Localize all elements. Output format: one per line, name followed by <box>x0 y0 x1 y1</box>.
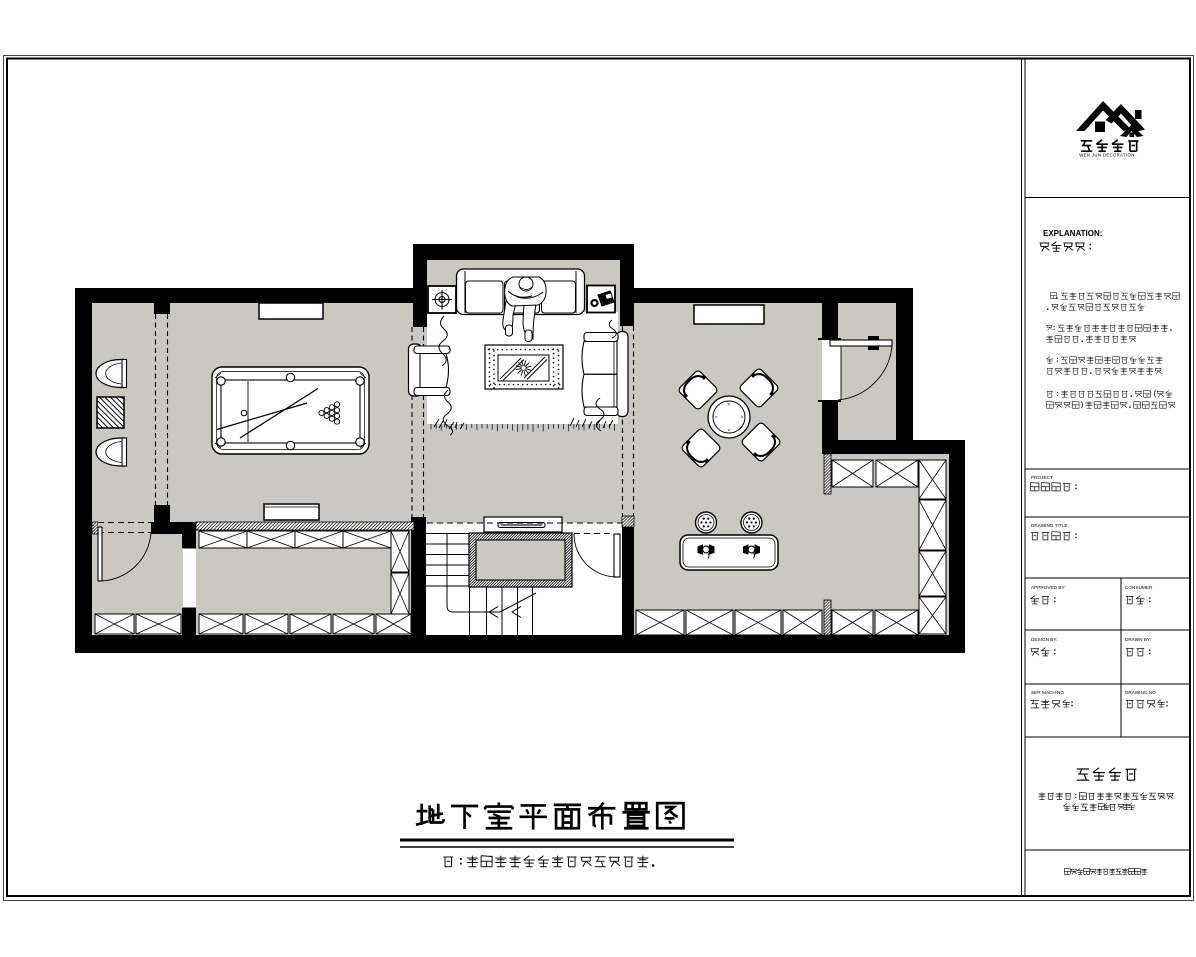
svg-text:EXPLANATION:: EXPLANATION: <box>1043 229 1102 238</box>
svg-text:DRAWN BY:: DRAWN BY: <box>1125 637 1151 642</box>
svg-text:DRAWING TITLE:: DRAWING TITLE: <box>1031 523 1069 528</box>
svg-text:WEN JUN DECORATION: WEN JUN DECORATION <box>1079 153 1134 158</box>
svg-text:DRAWING NO: DRAWING NO <box>1125 690 1156 695</box>
svg-text:SER MACH NO: SER MACH NO <box>1031 690 1064 695</box>
svg-text:DESIGN BY:: DESIGN BY: <box>1031 637 1058 642</box>
svg-text:PROJECT: PROJECT <box>1031 475 1053 480</box>
svg-text:APPROVED BY:: APPROVED BY: <box>1031 585 1066 590</box>
svg-text:CONSUMER: CONSUMER <box>1125 585 1153 590</box>
